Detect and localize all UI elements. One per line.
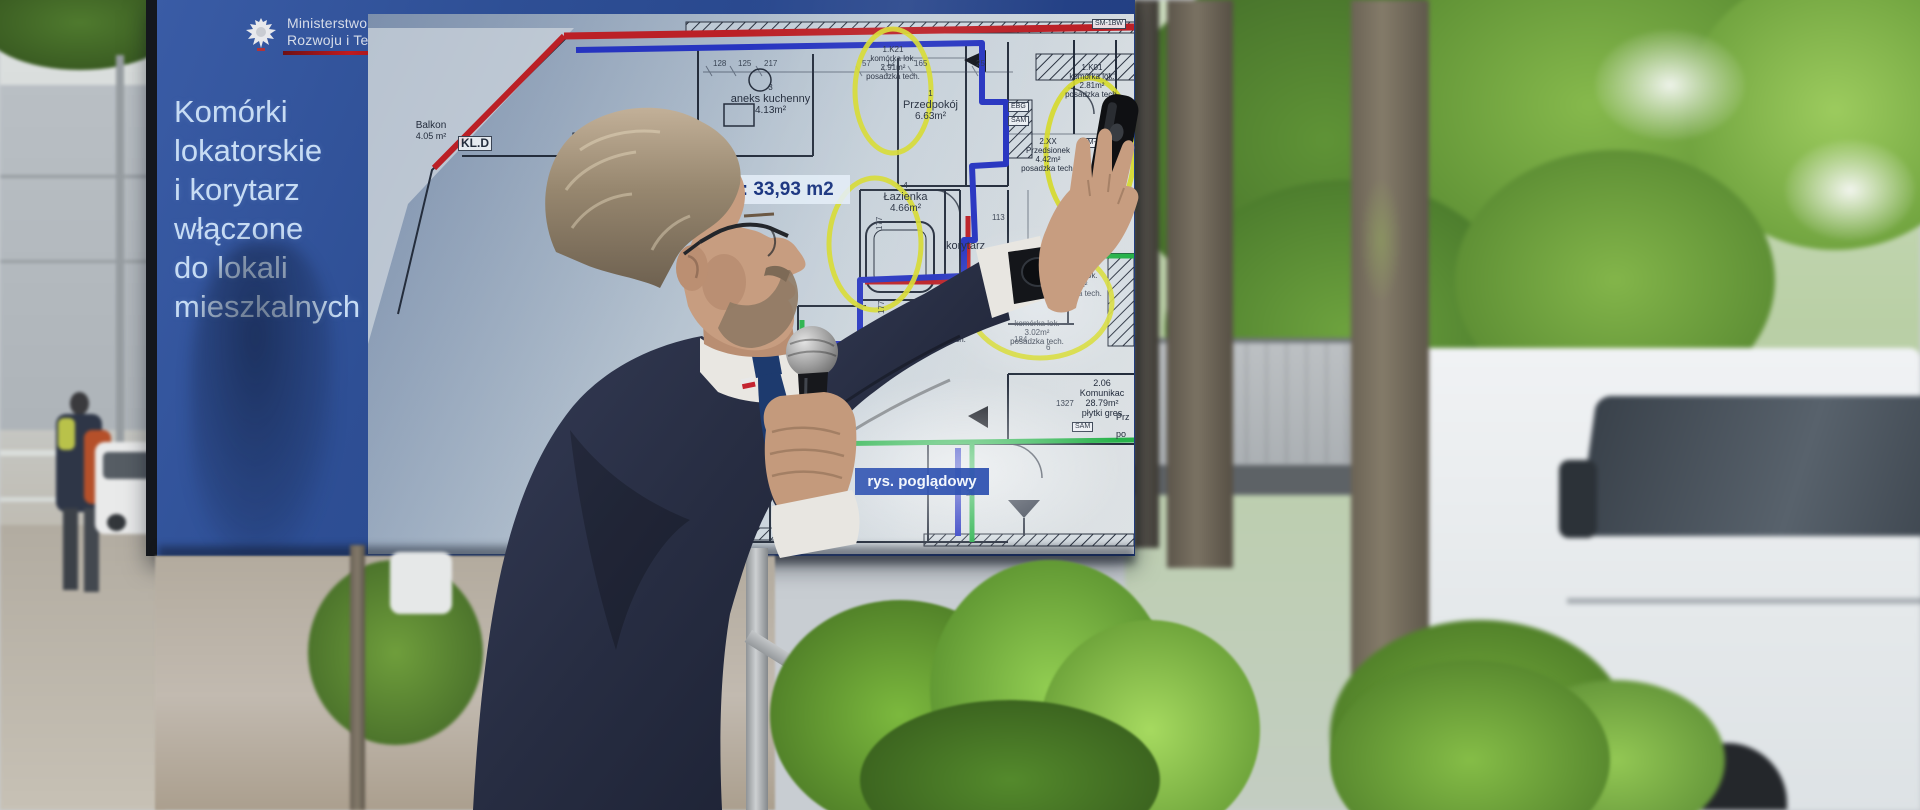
cheek-shadow <box>702 254 746 310</box>
photo-scene: Ministerstwo Rozwoju i Technologii Komór… <box>0 0 1920 810</box>
eyebrow <box>744 214 774 216</box>
pointing-hand <box>1039 129 1139 313</box>
presenter-man <box>0 0 1920 810</box>
ear <box>676 245 708 291</box>
